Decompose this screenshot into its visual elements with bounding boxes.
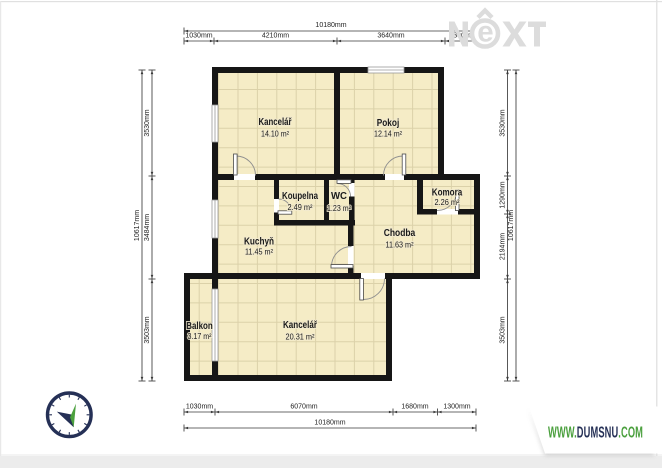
svg-text:Koupelna: Koupelna — [282, 191, 318, 202]
svg-text:Kancelář: Kancelář — [283, 320, 317, 331]
svg-text:10180mm: 10180mm — [315, 22, 346, 29]
svg-text:11.45 m²: 11.45 m² — [245, 247, 273, 256]
svg-text:3640mm: 3640mm — [377, 33, 404, 40]
svg-text:12.14 m²: 12.14 m² — [374, 130, 402, 139]
svg-text:1290mm: 1290mm — [500, 181, 507, 208]
svg-text:Kancelář: Kancelář — [259, 117, 292, 128]
svg-text:4210mm: 4210mm — [262, 33, 289, 40]
svg-text:2.49 m²: 2.49 m² — [288, 203, 313, 212]
svg-text:1300mm: 1300mm — [443, 404, 470, 411]
svg-text:3530mm: 3530mm — [500, 109, 507, 136]
svg-text:11.63 m²: 11.63 m² — [386, 240, 414, 249]
svg-text:Kuchyň: Kuchyň — [244, 236, 274, 247]
svg-text:Balkon: Balkon — [186, 321, 213, 332]
svg-text:3484mm: 3484mm — [144, 214, 151, 241]
svg-text:1030mm: 1030mm — [186, 404, 213, 411]
svg-text:10617mm: 10617mm — [508, 210, 515, 241]
svg-text:3.17 m²: 3.17 m² — [188, 332, 212, 341]
svg-text:6070mm: 6070mm — [290, 404, 317, 411]
svg-text:14.10 m²: 14.10 m² — [261, 129, 289, 138]
svg-text:2.26 m²: 2.26 m² — [435, 198, 460, 207]
svg-text:WC: WC — [331, 191, 347, 202]
svg-text:10180mm: 10180mm — [314, 420, 345, 427]
svg-text:20.31 m²: 20.31 m² — [286, 332, 315, 341]
svg-text:2194mm: 2194mm — [500, 233, 507, 260]
svg-text:Pokoj: Pokoj — [377, 118, 400, 129]
svg-text:Chodba: Chodba — [384, 228, 416, 239]
svg-text:e: e — [477, 16, 493, 49]
svg-text:Komora: Komora — [432, 188, 463, 199]
svg-text:1680mm: 1680mm — [401, 404, 428, 411]
svg-text:3503mm: 3503mm — [500, 316, 507, 343]
svg-text:1.23 m²: 1.23 m² — [327, 204, 351, 213]
svg-text:10617mm: 10617mm — [134, 210, 141, 241]
svg-text:3503mm: 3503mm — [144, 316, 151, 343]
svg-text:3530mm: 3530mm — [144, 109, 151, 136]
svg-text:1030mm: 1030mm — [185, 33, 212, 40]
svg-text:WWW.DUMSNU.COM: WWW.DUMSNU.COM — [548, 423, 643, 441]
